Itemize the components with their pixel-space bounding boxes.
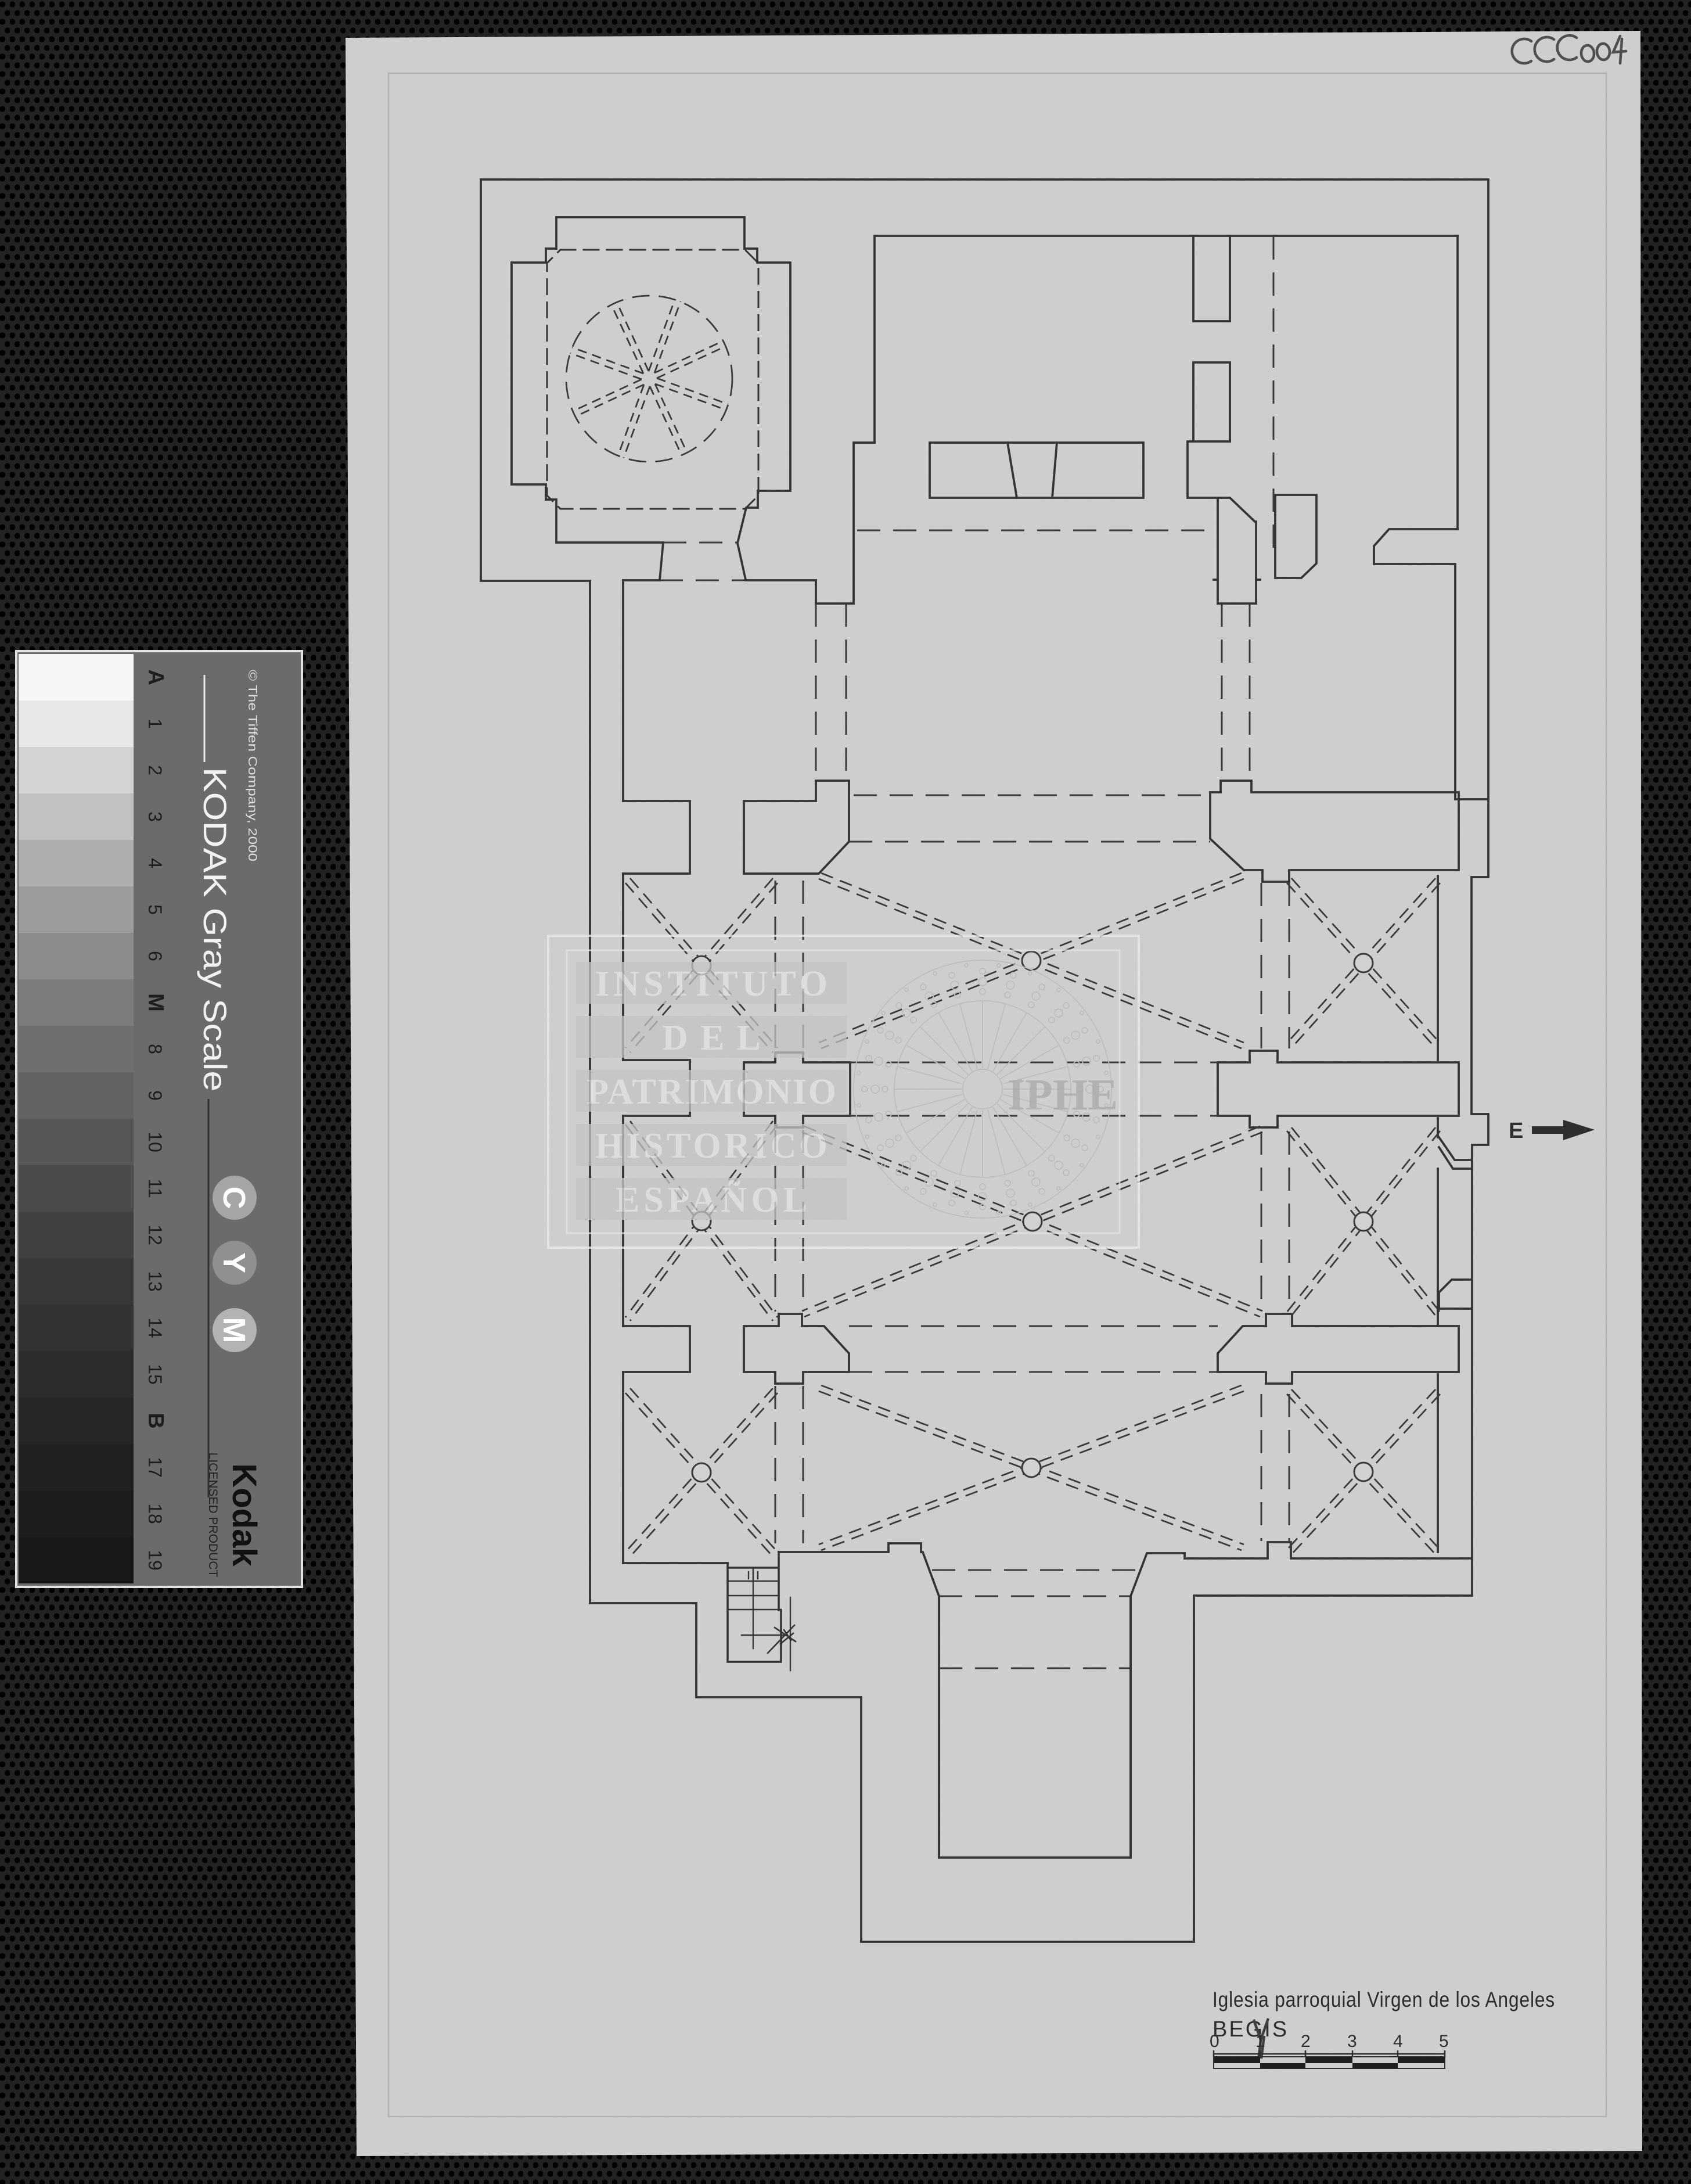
svg-text:15: 15	[145, 1364, 165, 1385]
svg-text:Kodak: Kodak	[225, 1463, 263, 1567]
svg-text:14: 14	[145, 1317, 165, 1338]
svg-text:M: M	[143, 993, 168, 1012]
svg-text:3: 3	[1347, 2032, 1357, 2051]
svg-text:HISTORICO: HISTORICO	[595, 1126, 827, 1166]
svg-text:2: 2	[1301, 2032, 1311, 2051]
svg-text:4: 4	[145, 858, 165, 868]
svg-text:1: 1	[1255, 2032, 1265, 2051]
svg-text:LICENSED PRODUCT: LICENSED PRODUCT	[206, 1453, 220, 1578]
svg-text:17: 17	[145, 1457, 165, 1478]
svg-text:DEL: DEL	[662, 1018, 761, 1058]
svg-text:2: 2	[145, 765, 165, 775]
svg-text:5: 5	[145, 904, 165, 915]
svg-text:1: 1	[145, 719, 165, 729]
svg-text:13: 13	[145, 1271, 165, 1292]
svg-text:9: 9	[145, 1090, 165, 1101]
svg-text:11: 11	[145, 1179, 165, 1198]
svg-text:8: 8	[145, 1044, 165, 1054]
svg-text:B: B	[143, 1413, 168, 1428]
svg-text:3: 3	[145, 811, 165, 822]
svg-text:PATRIMONIO: PATRIMONIO	[587, 1072, 836, 1112]
svg-text:E: E	[1509, 1119, 1523, 1143]
svg-text:A: A	[143, 669, 168, 685]
svg-text:18: 18	[145, 1503, 165, 1524]
svg-text:19: 19	[145, 1550, 165, 1571]
svg-text:4: 4	[1393, 2032, 1403, 2051]
svg-text:0: 0	[1210, 2032, 1219, 2051]
svg-text:Iglesia parroquial Virgen d: Iglesia parroquial Virgen de los Angeles	[1213, 1988, 1555, 2011]
svg-text:ESPAÑOL: ESPAÑOL	[616, 1180, 807, 1220]
svg-text:KODAK Gray Scale: KODAK Gray Scale	[197, 767, 233, 1091]
svg-text:IPHE: IPHE	[1008, 1071, 1118, 1119]
svg-text:© The Tiffen Company, 2000: © The Tiffen Company, 2000	[246, 670, 259, 861]
svg-text:Y: Y	[217, 1252, 251, 1273]
svg-text:M: M	[217, 1317, 251, 1344]
svg-text:10: 10	[145, 1131, 165, 1152]
svg-text:BEGIS: BEGIS	[1213, 2017, 1289, 2042]
svg-text:C: C	[217, 1187, 251, 1209]
svg-text:5: 5	[1439, 2032, 1449, 2051]
svg-text:6: 6	[145, 951, 165, 961]
svg-text:12: 12	[145, 1224, 165, 1245]
